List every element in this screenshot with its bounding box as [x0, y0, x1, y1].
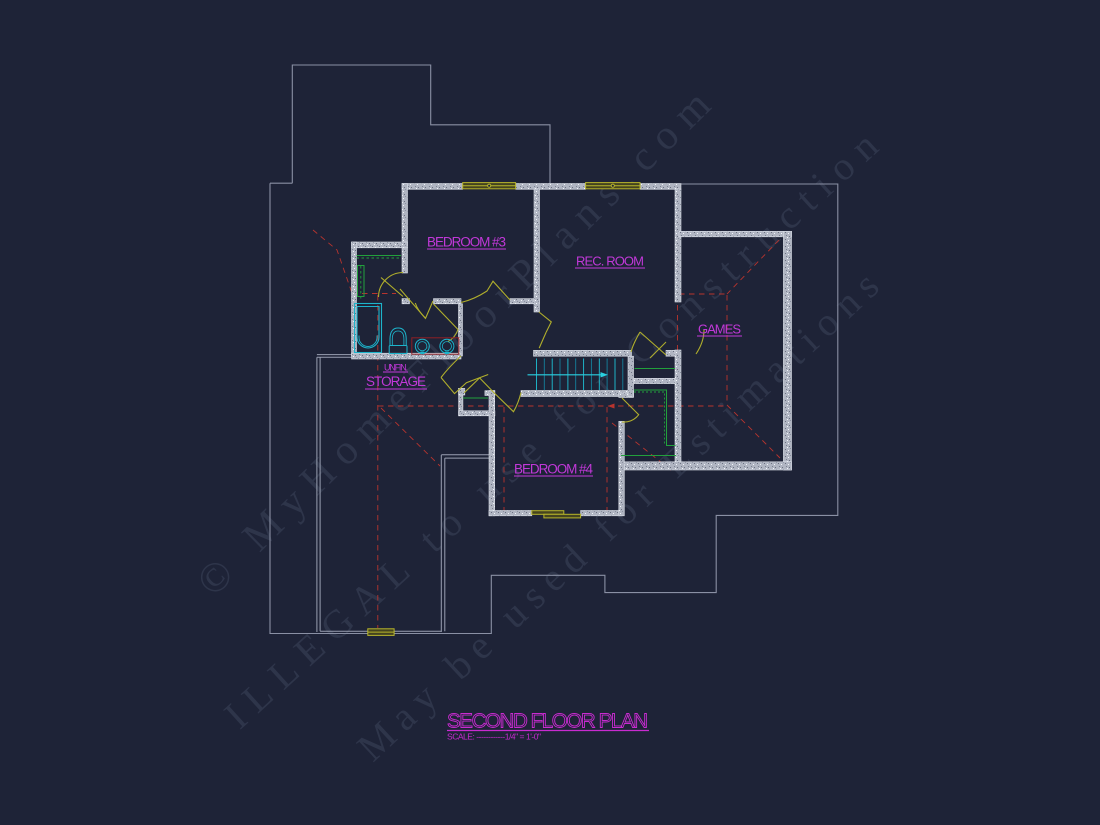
svg-text:STORAGE: STORAGE	[366, 374, 426, 389]
svg-text:BEDROOM #4: BEDROOM #4	[514, 462, 593, 477]
svg-text:BEDROOM #3: BEDROOM #3	[427, 235, 506, 250]
svg-text:GAMES: GAMES	[698, 322, 741, 337]
svg-text:SECOND FLOOR PLAN: SECOND FLOOR PLAN	[447, 710, 648, 733]
svg-text:UNFIN.: UNFIN.	[384, 363, 408, 373]
svg-text:REC. ROOM: REC. ROOM	[576, 254, 644, 269]
svg-text:SCALE: ------------1/4" = 1'-0: SCALE: ------------1/4" = 1'-0"	[447, 732, 541, 742]
